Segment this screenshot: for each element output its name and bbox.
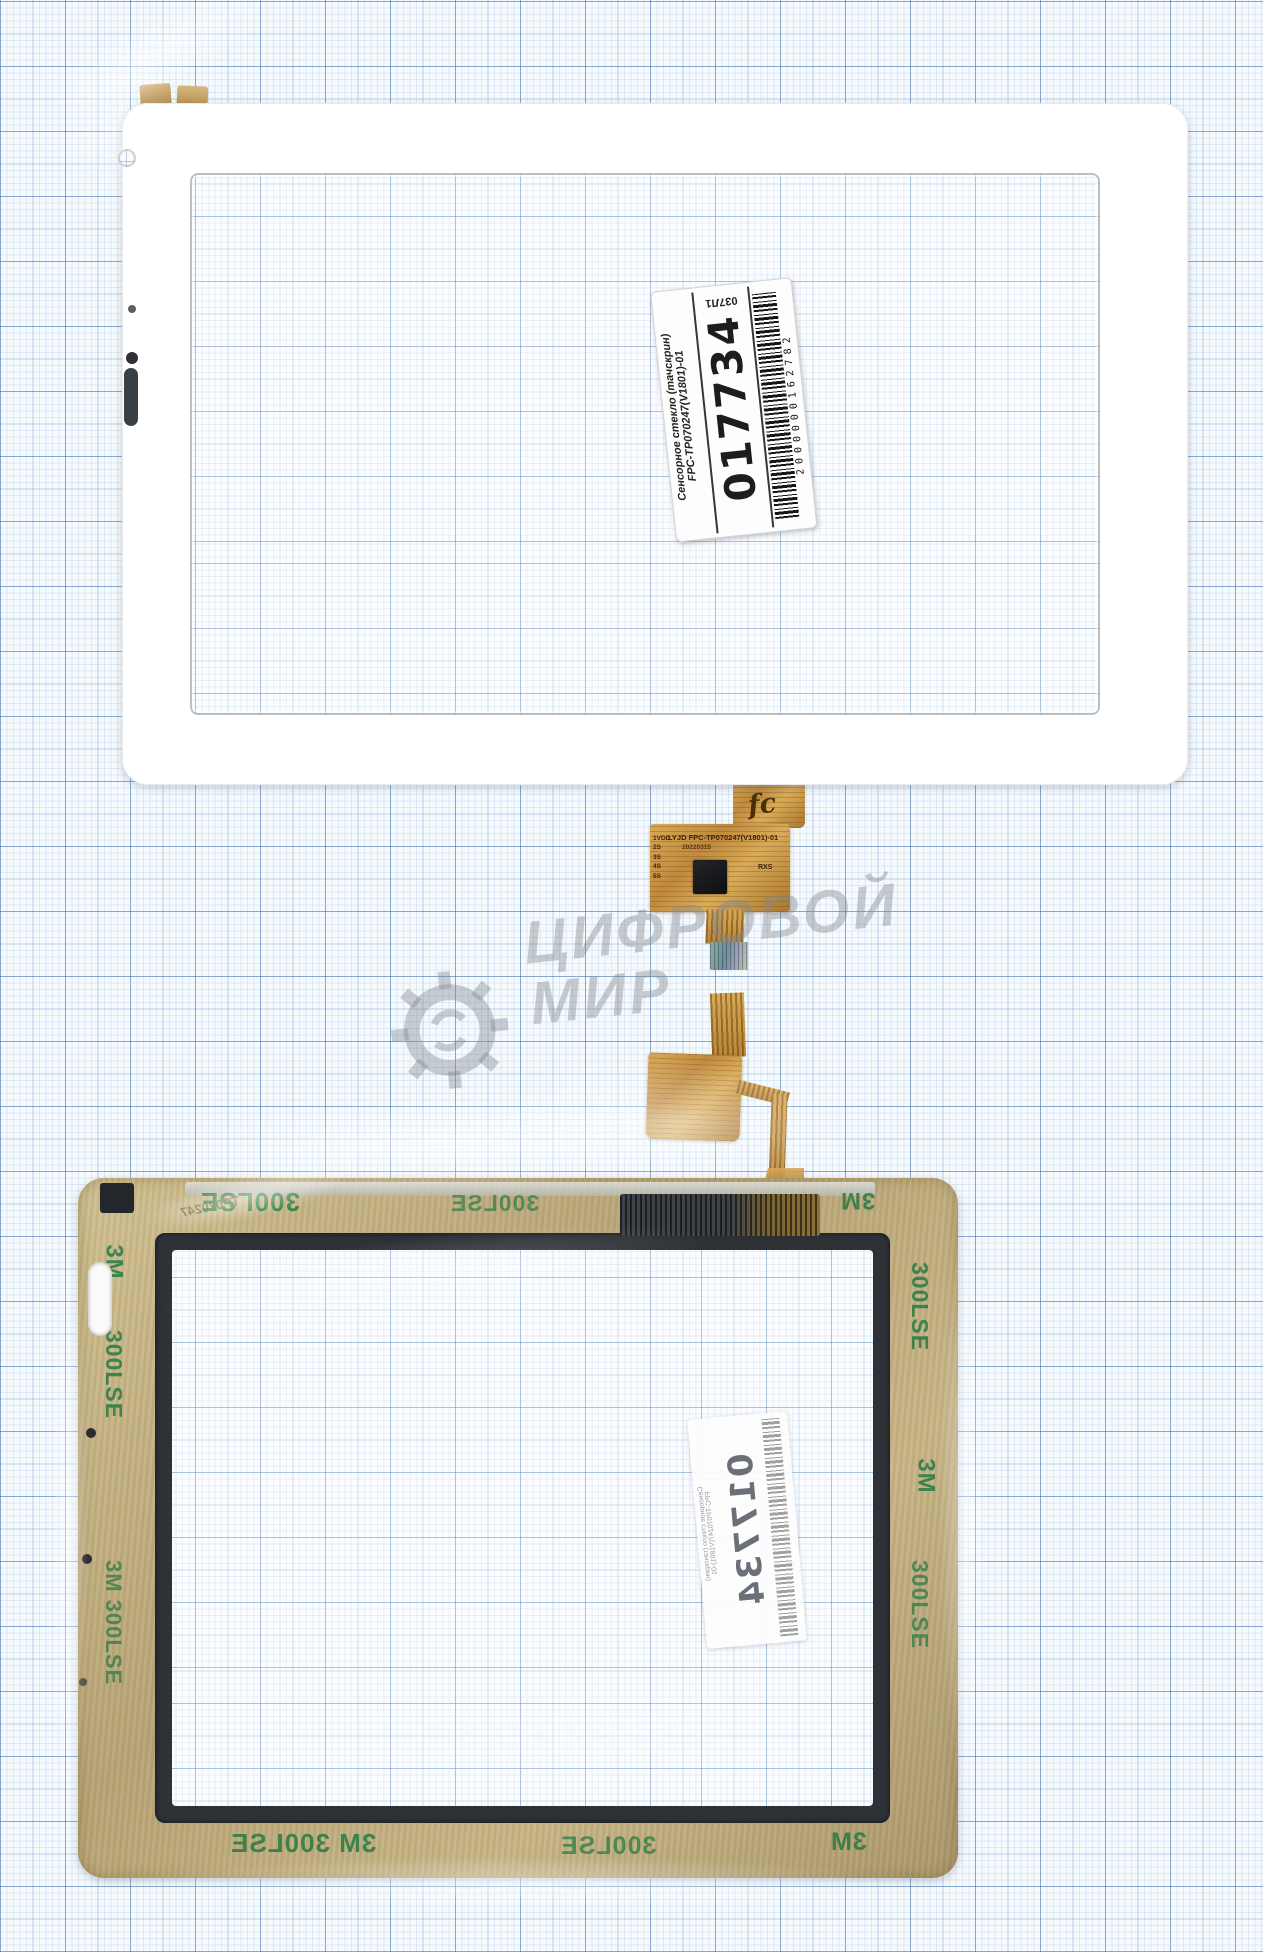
wrap-sheen bbox=[941, 1215, 987, 1815]
tape-print: 300LSE bbox=[906, 1560, 933, 1649]
barcode-label: Сенсорное стекло (тачскрин) FPC-TP070247… bbox=[650, 277, 818, 542]
back-camera-window bbox=[100, 1183, 134, 1213]
sensor-dot bbox=[128, 305, 136, 313]
tape-print: 3M 300LSE bbox=[100, 1560, 126, 1685]
fpc-date: 20220315 bbox=[682, 844, 711, 851]
camera-dot bbox=[126, 352, 138, 364]
fpc-title: LYJD FPC-TP070247(V1801)-01 bbox=[668, 833, 778, 842]
fpc-part: FPC-TP070247(V1801)-01 bbox=[689, 833, 779, 842]
back-speaker-slot bbox=[88, 1262, 112, 1336]
tape-print: 300LSE bbox=[906, 1262, 933, 1351]
fpc-mark: RXS bbox=[758, 864, 772, 871]
fc-logo-text: fc bbox=[746, 788, 777, 822]
wrap-sheen bbox=[50, 1205, 88, 1845]
mirrored-label: 017734 Сенсорное стекло (тачскрин) FPC-T… bbox=[687, 1411, 807, 1649]
tape-print: 300LSE bbox=[560, 1832, 656, 1861]
label-top-code-text: 037Л1 bbox=[705, 294, 738, 309]
tape-print: 3M bbox=[830, 1828, 867, 1857]
tape-print: 3M 300LSE bbox=[230, 1828, 376, 1859]
fc-logo: fc bbox=[746, 788, 777, 822]
front-panel-window bbox=[190, 173, 1100, 715]
speaker-slot bbox=[124, 368, 138, 426]
wrap-sheen bbox=[476, 1043, 874, 1200]
photo-stage: Сенсорное стекло (тачскрин) FPC-TP070247… bbox=[0, 0, 1263, 1952]
wrap-sheen bbox=[95, 1858, 945, 1908]
tape-print: 3M bbox=[912, 1458, 940, 1493]
fpc-vendor: LYJD bbox=[668, 833, 686, 842]
tape-print: 300LSE bbox=[450, 1190, 539, 1217]
tape-print: 300LSE bbox=[100, 1330, 127, 1419]
